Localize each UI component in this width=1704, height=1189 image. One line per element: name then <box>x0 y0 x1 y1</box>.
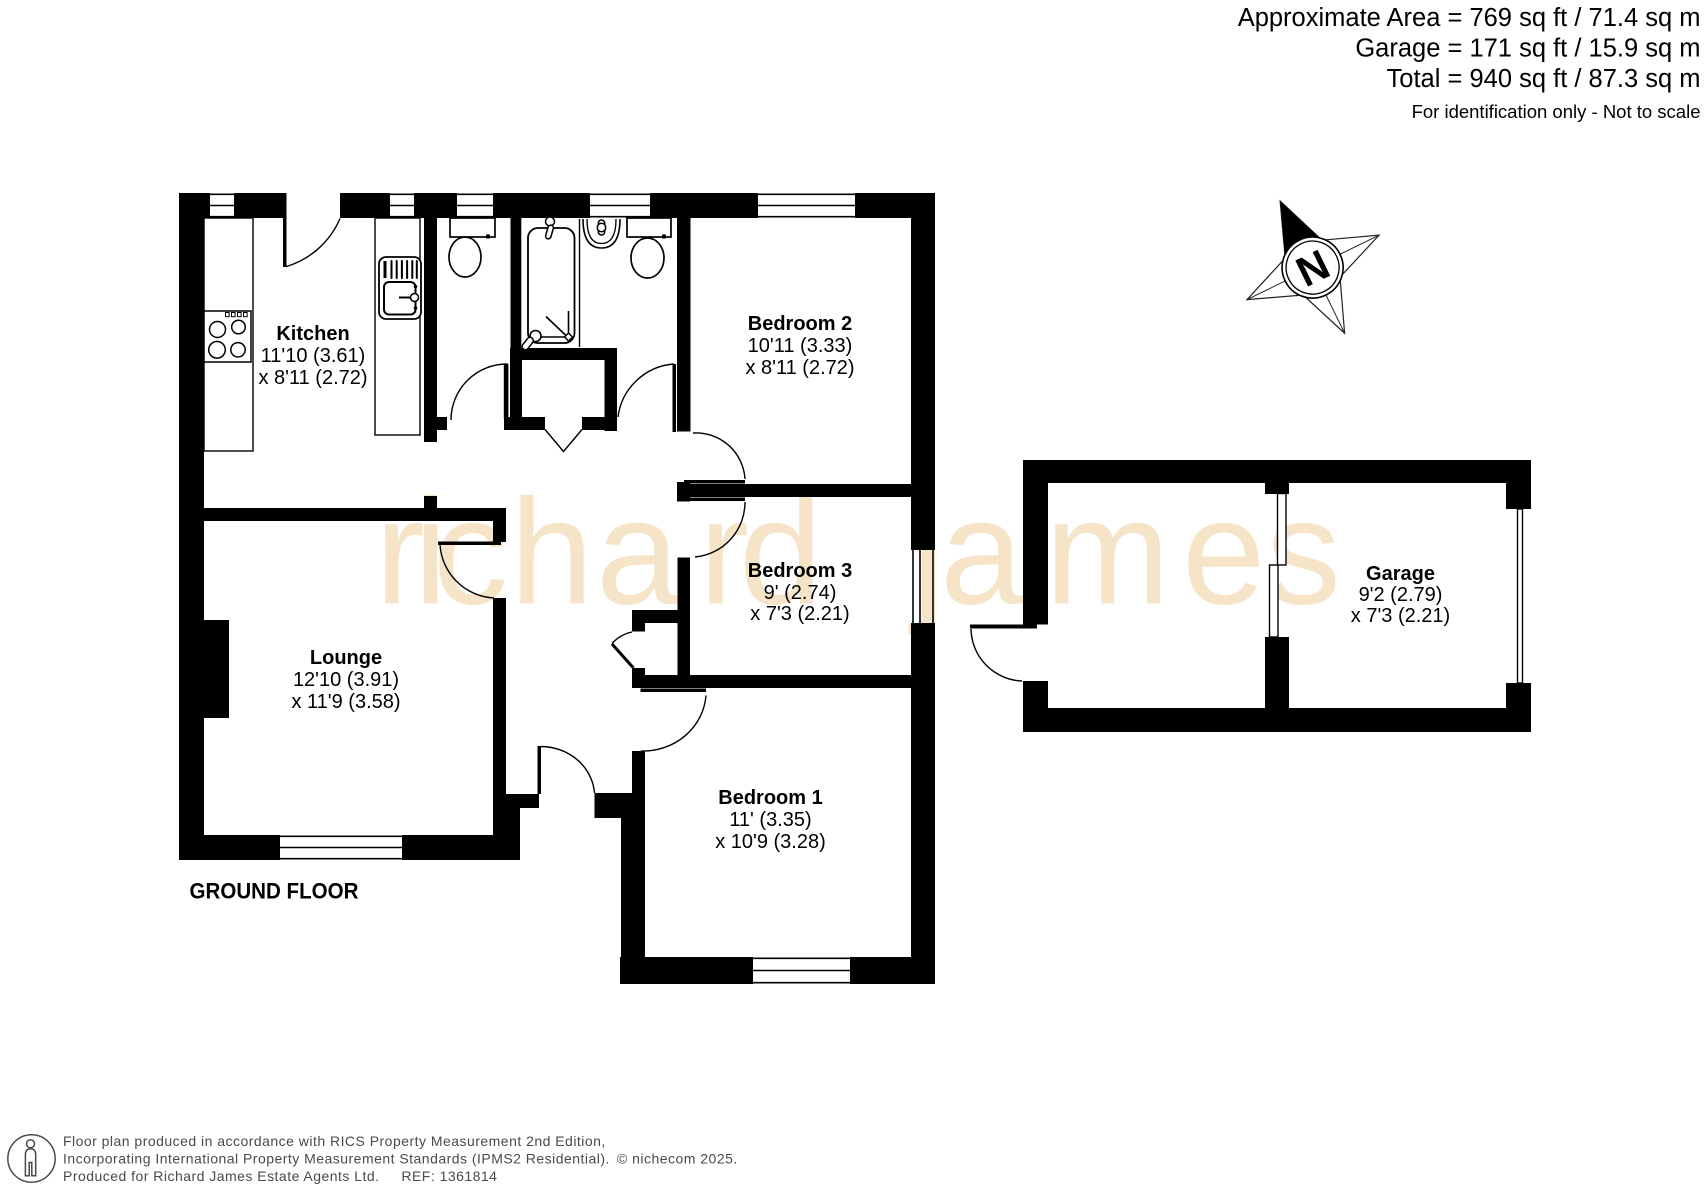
svg-text:Garage: Garage <box>1366 563 1435 585</box>
svg-text:x 10'9 (3.28): x 10'9 (3.28) <box>715 831 826 853</box>
svg-text:Garage = 171 sq ft / 15.9 sq m: Garage = 171 sq ft / 15.9 sq m <box>1355 35 1700 63</box>
svg-text:Approximate Area = 769 sq ft /: Approximate Area = 769 sq ft / 71.4 sq m <box>1238 4 1701 32</box>
svg-text:x 8'11 (2.72): x 8'11 (2.72) <box>745 357 854 379</box>
svg-text:12'10 (3.91): 12'10 (3.91) <box>293 669 399 691</box>
svg-text:x 7'3 (2.21): x 7'3 (2.21) <box>1351 605 1450 627</box>
svg-text:Produced for Richard James Est: Produced for Richard James Estate Agents… <box>63 1168 497 1184</box>
svg-text:Kitchen: Kitchen <box>276 323 349 345</box>
svg-text:9' (2.74): 9' (2.74) <box>764 582 837 604</box>
svg-text:Bedroom 3: Bedroom 3 <box>748 560 852 582</box>
svg-text:x 7'3 (2.21): x 7'3 (2.21) <box>750 603 849 625</box>
svg-text:Bedroom 1: Bedroom 1 <box>718 787 822 809</box>
svg-text:11'10 (3.61): 11'10 (3.61) <box>261 345 366 367</box>
svg-text:x 8'11 (2.72): x 8'11 (2.72) <box>258 367 367 389</box>
svg-text:11' (3.35): 11' (3.35) <box>729 809 811 831</box>
svg-text:Floor plan produced in accorda: Floor plan produced in accordance with R… <box>63 1133 606 1149</box>
svg-text:10'11 (3.33): 10'11 (3.33) <box>748 335 853 357</box>
svg-text:9'2 (2.79): 9'2 (2.79) <box>1359 584 1443 606</box>
svg-text:For identification only - Not: For identification only - Not to scale <box>1412 101 1701 122</box>
svg-text:Lounge: Lounge <box>310 647 382 669</box>
svg-text:Total = 940 sq ft / 87.3 sq m: Total = 940 sq ft / 87.3 sq m <box>1387 65 1701 93</box>
svg-text:Incorporating International Pr: Incorporating International Property Mea… <box>63 1151 610 1167</box>
svg-text:GROUND FLOOR: GROUND FLOOR <box>190 879 359 904</box>
svg-text:© nichecom 2025.: © nichecom 2025. <box>617 1151 738 1167</box>
svg-text:x 11'9 (3.58): x 11'9 (3.58) <box>291 691 400 713</box>
svg-text:Bedroom 2: Bedroom 2 <box>748 313 852 335</box>
